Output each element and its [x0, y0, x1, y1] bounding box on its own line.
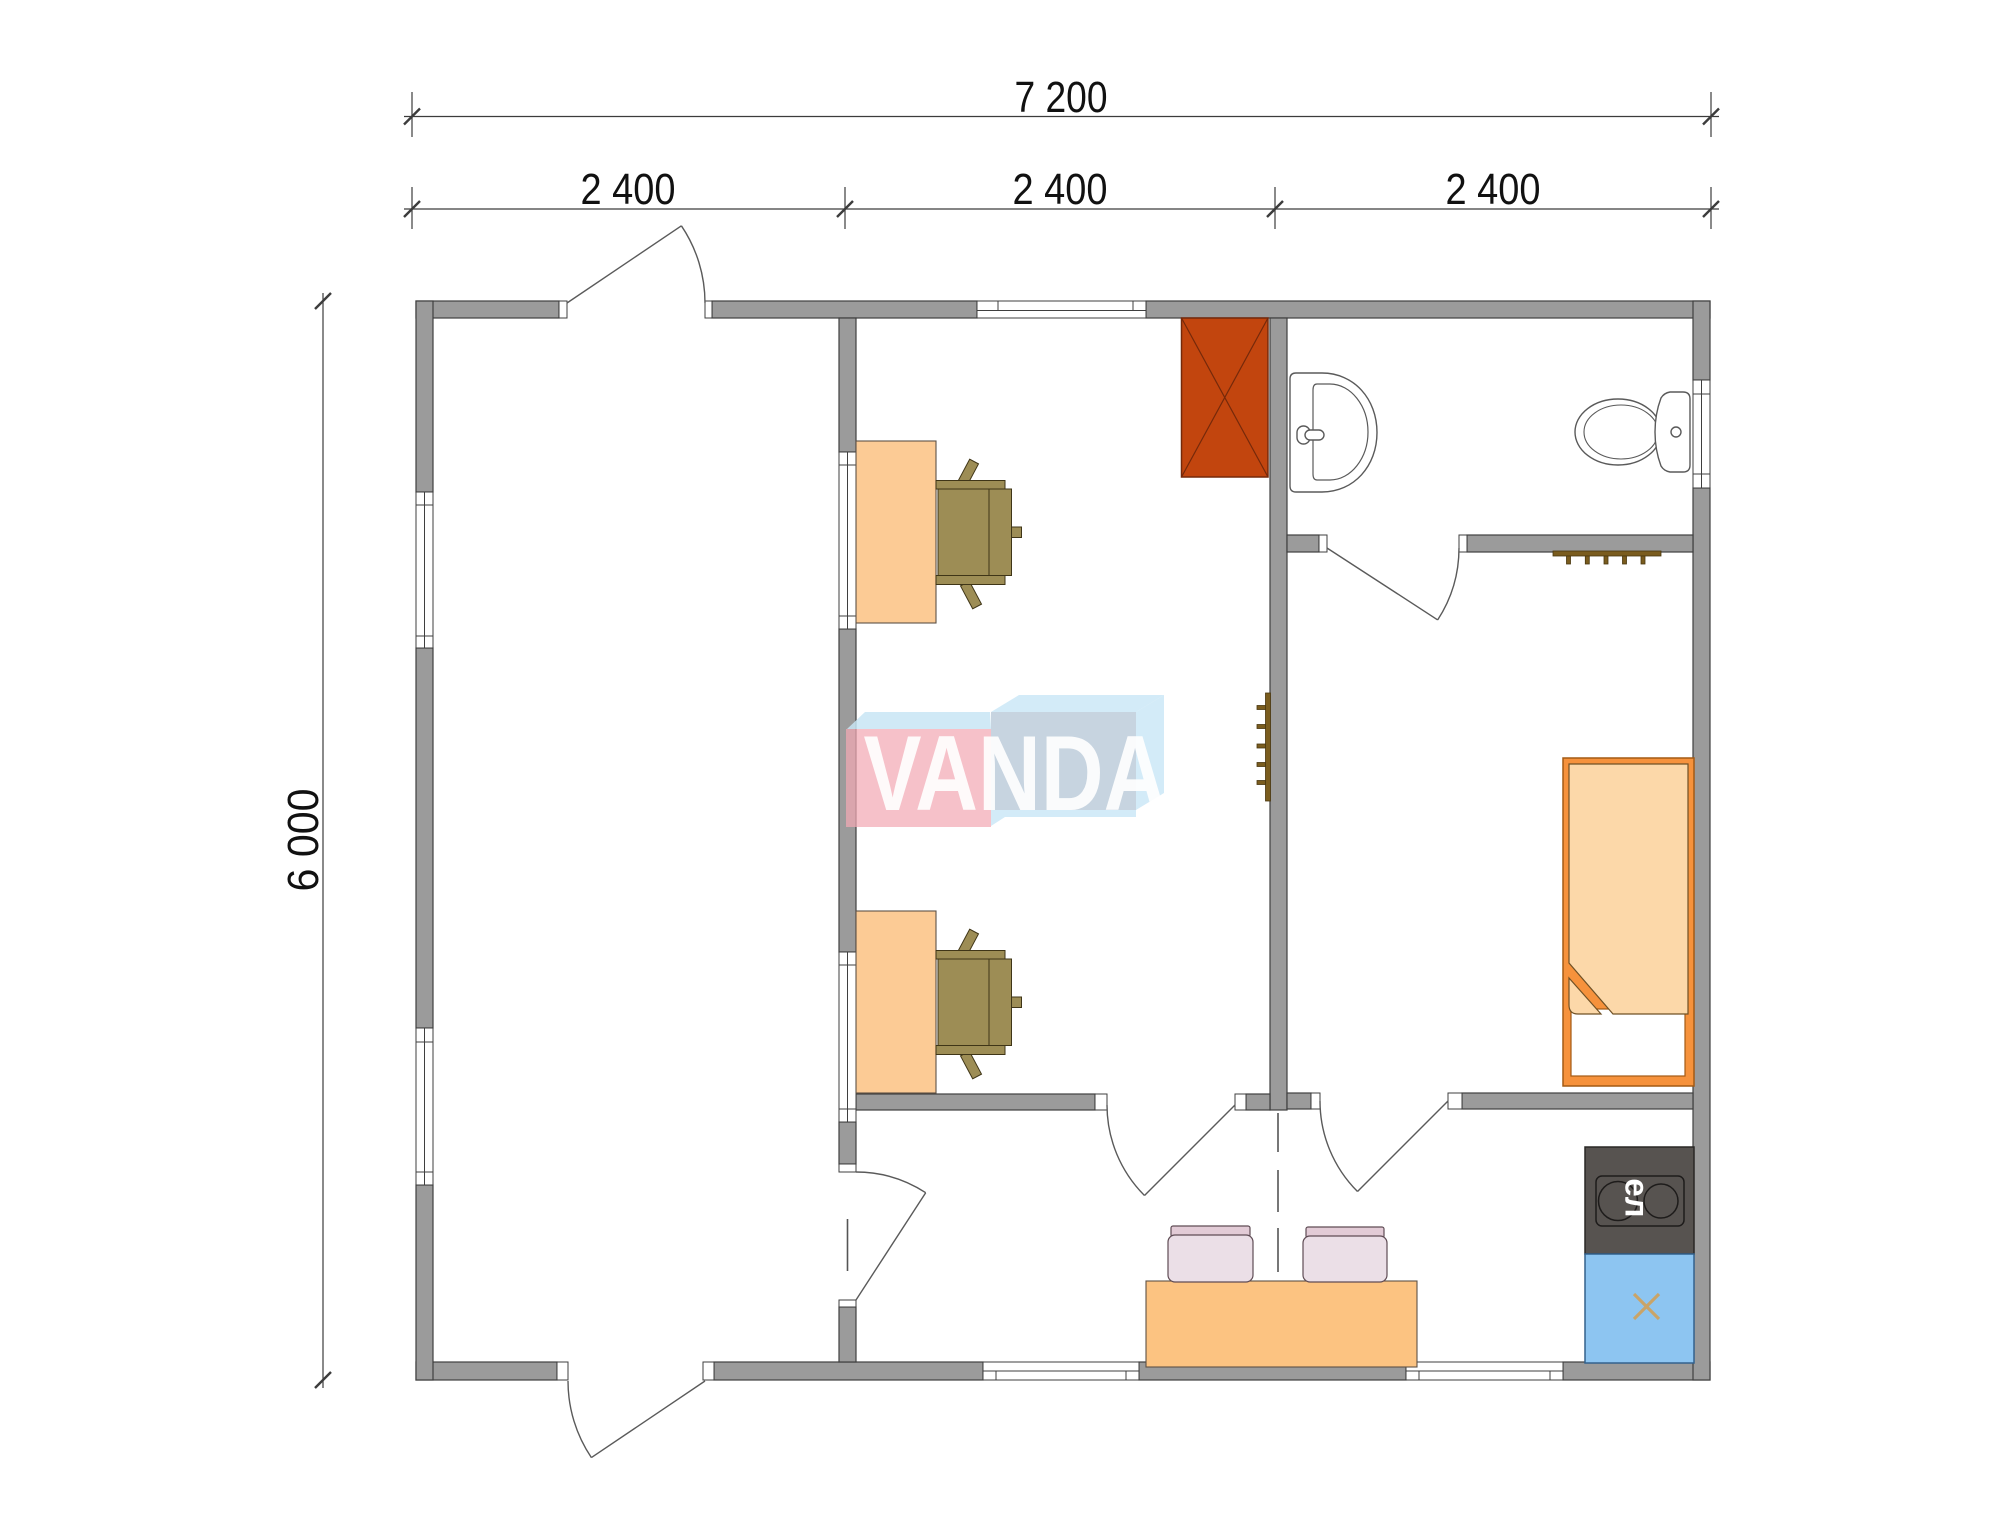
svg-text:6 000: 6 000 — [279, 789, 328, 892]
svg-text:VANDA: VANDA — [864, 713, 1167, 833]
svg-text:ел: ел — [1619, 1178, 1656, 1217]
svg-text:7 200: 7 200 — [1015, 73, 1108, 122]
svg-text:2 400: 2 400 — [1013, 165, 1108, 214]
svg-text:2 400: 2 400 — [581, 165, 676, 214]
svg-text:2 400: 2 400 — [1446, 165, 1541, 214]
